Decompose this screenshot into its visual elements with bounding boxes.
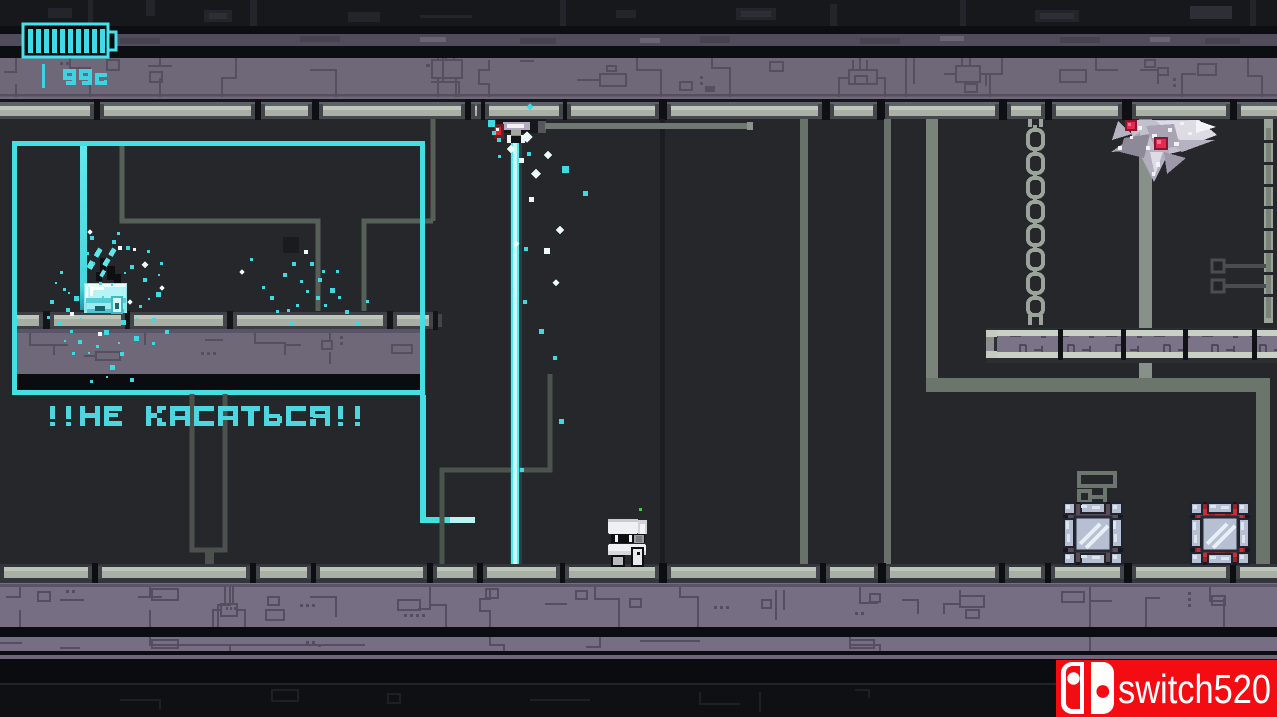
svg-text:switch520: switch520: [1118, 666, 1271, 712]
